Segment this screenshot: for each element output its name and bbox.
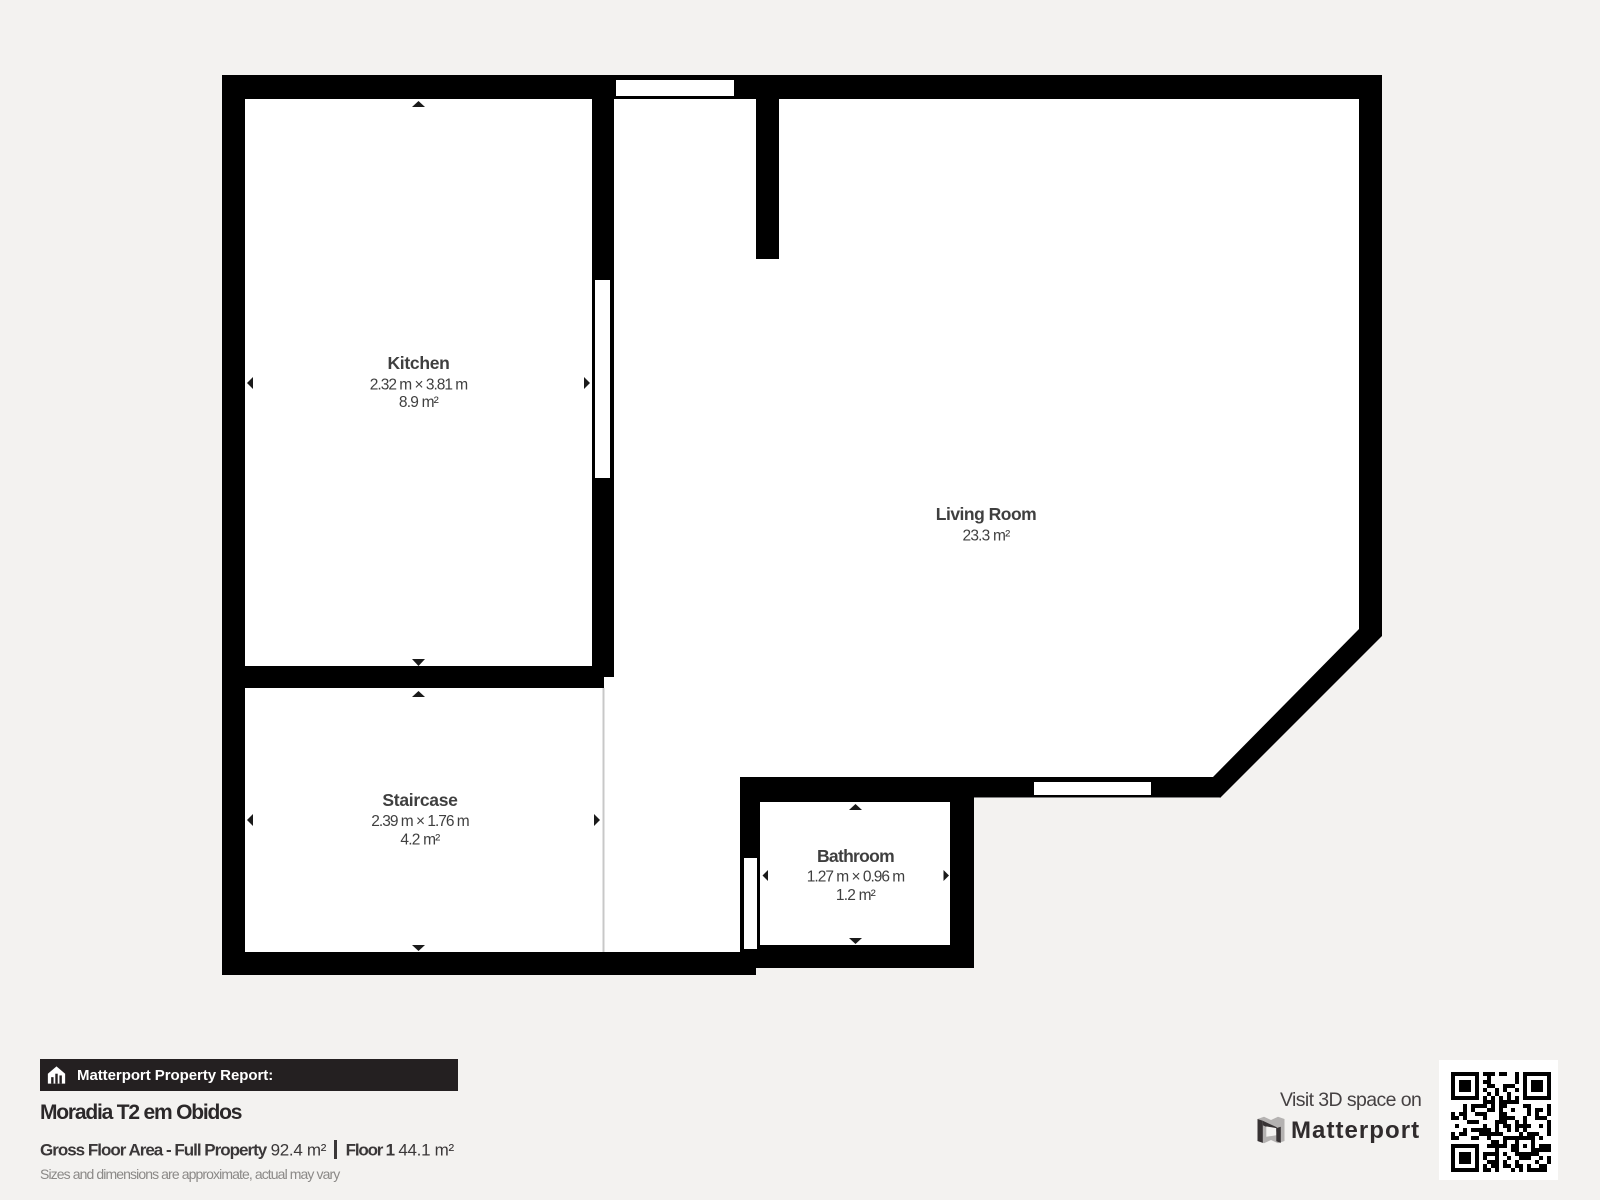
svg-text:Kitchen: Kitchen bbox=[387, 353, 449, 373]
svg-text:1.27 m × 0.96 m: 1.27 m × 0.96 m bbox=[807, 869, 905, 886]
svg-text:Bathroom: Bathroom bbox=[817, 846, 894, 866]
svg-text:2.39 m × 1.76 m: 2.39 m × 1.76 m bbox=[371, 813, 469, 830]
svg-text:4.2 m²: 4.2 m² bbox=[400, 832, 440, 849]
svg-text:8.9 m²: 8.9 m² bbox=[399, 394, 439, 411]
svg-text:Living Room: Living Room bbox=[936, 504, 1036, 524]
svg-text:Staircase: Staircase bbox=[382, 790, 458, 810]
svg-text:23.3 m²: 23.3 m² bbox=[963, 528, 1011, 545]
svg-text:2.32 m × 3.81 m: 2.32 m × 3.81 m bbox=[370, 377, 468, 394]
svg-text:1.2 m²: 1.2 m² bbox=[836, 887, 876, 904]
